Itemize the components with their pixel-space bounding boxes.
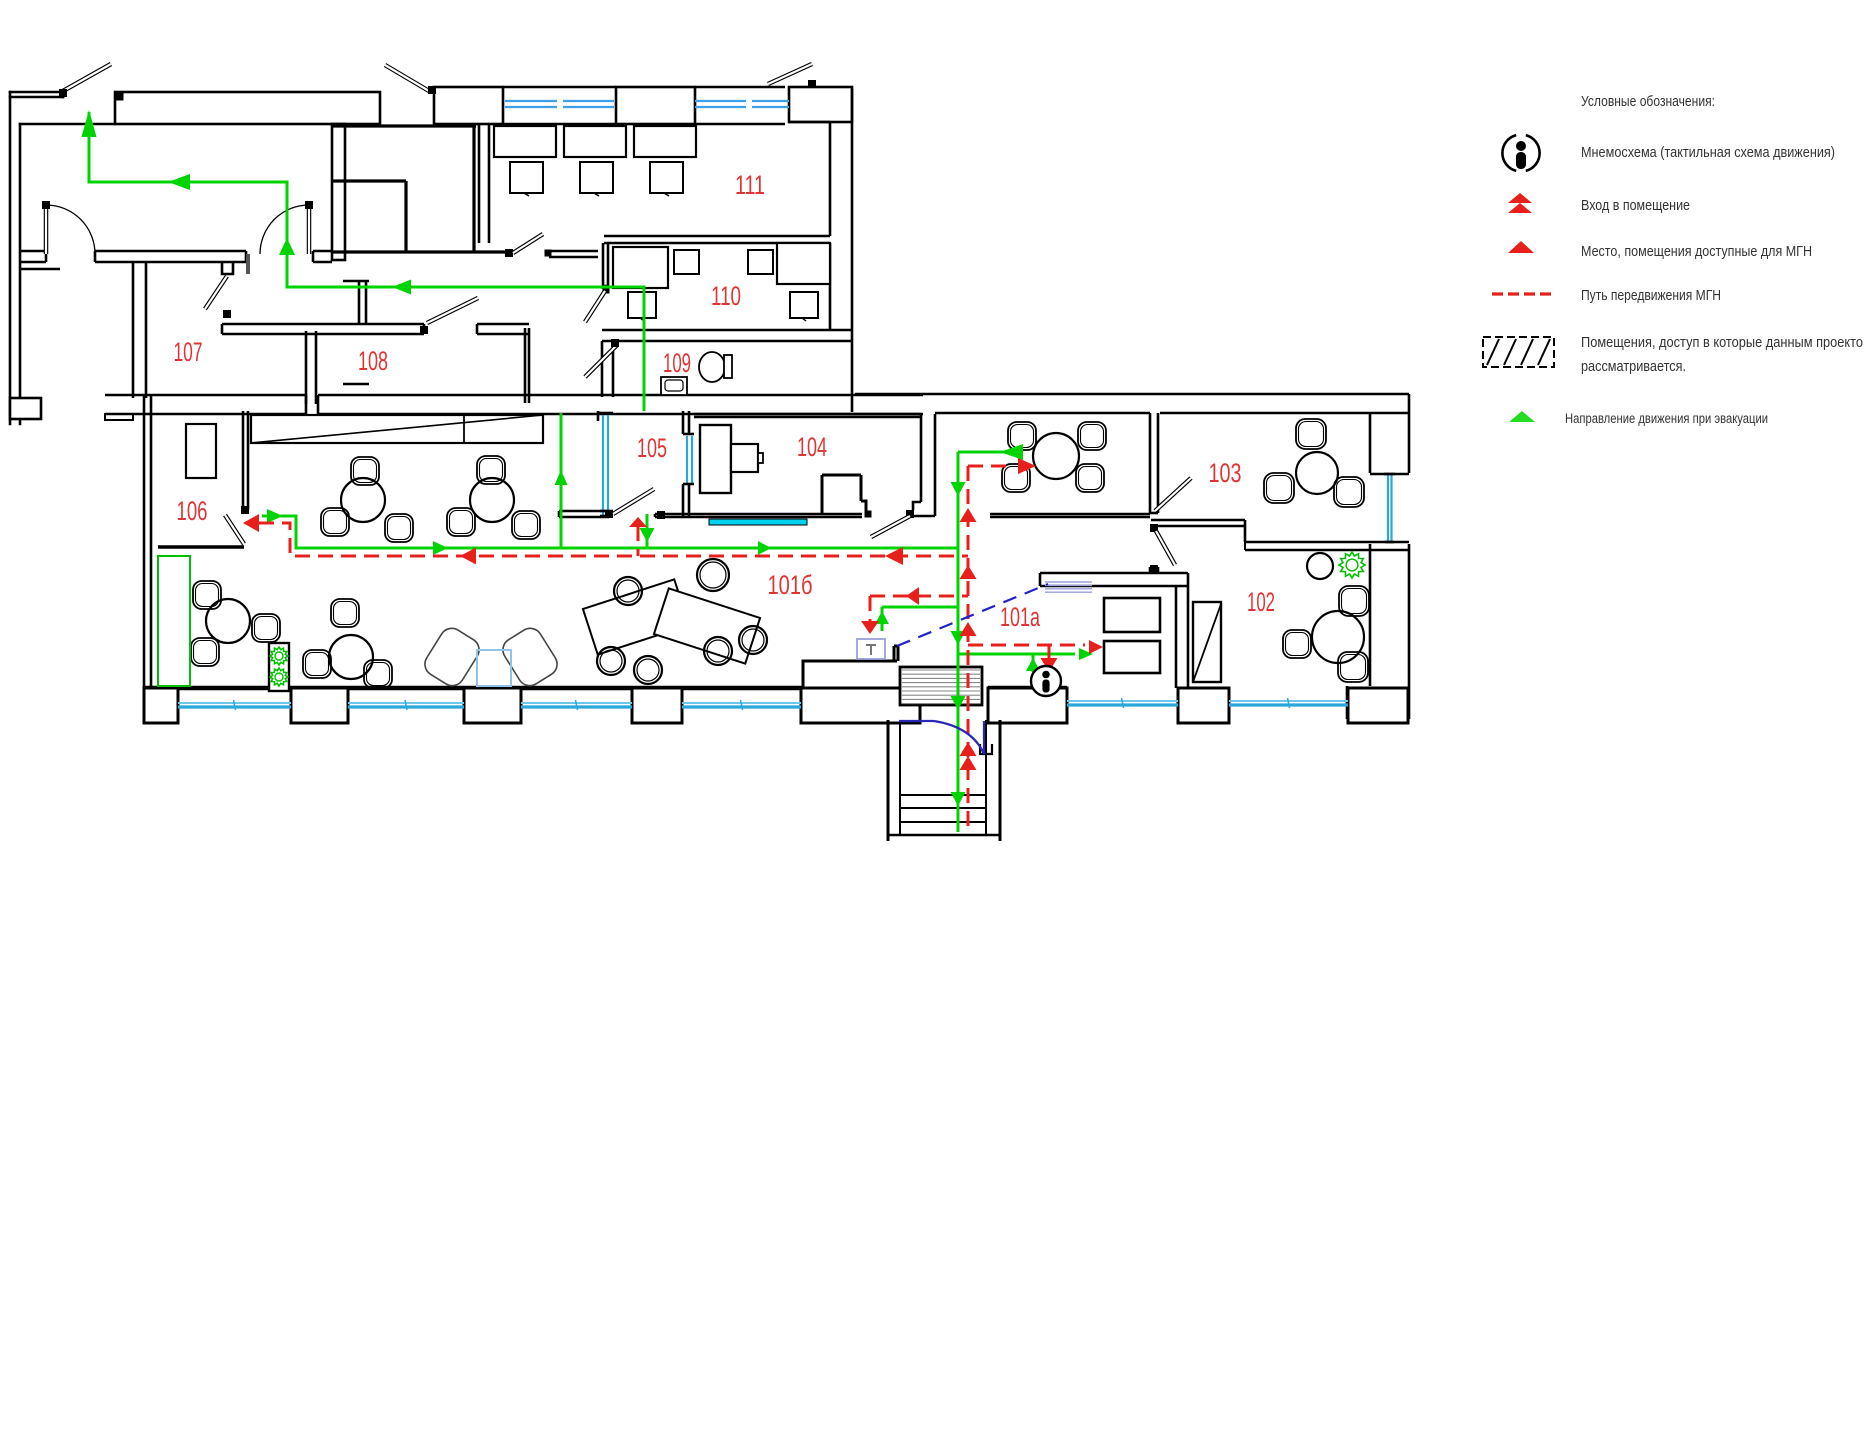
svg-text:Место, помещения доступные для: Место, помещения доступные для МГН xyxy=(1581,244,1812,260)
svg-text:Условные обозначения:: Условные обозначения: xyxy=(1581,94,1715,110)
svg-text:102: 102 xyxy=(1247,587,1275,617)
svg-text:Направление движения при эваку: Направление движения при эвакуации xyxy=(1565,411,1768,426)
svg-text:Путь передвижения МГН: Путь передвижения МГН xyxy=(1581,288,1721,304)
svg-text:104: 104 xyxy=(797,432,827,462)
svg-text:Мнемосхема (тактильная схема д: Мнемосхема (тактильная схема движения) xyxy=(1581,145,1835,161)
svg-text:111: 111 xyxy=(735,170,765,200)
svg-text:105: 105 xyxy=(637,433,667,463)
svg-text:106: 106 xyxy=(177,496,208,526)
svg-text:Помещения, доступ в которые да: Помещения, доступ в которые данным проек… xyxy=(1581,335,1863,351)
svg-text:101а: 101а xyxy=(1000,602,1041,632)
svg-text:рассматривается.: рассматривается. xyxy=(1581,359,1686,375)
svg-text:110: 110 xyxy=(711,281,741,311)
svg-text:107: 107 xyxy=(174,337,203,367)
svg-text:109: 109 xyxy=(663,348,691,378)
svg-text:108: 108 xyxy=(358,346,388,376)
svg-text:Вход в помещение: Вход в помещение xyxy=(1581,198,1690,214)
svg-text:103: 103 xyxy=(1209,458,1242,488)
svg-text:101б: 101б xyxy=(768,570,813,600)
